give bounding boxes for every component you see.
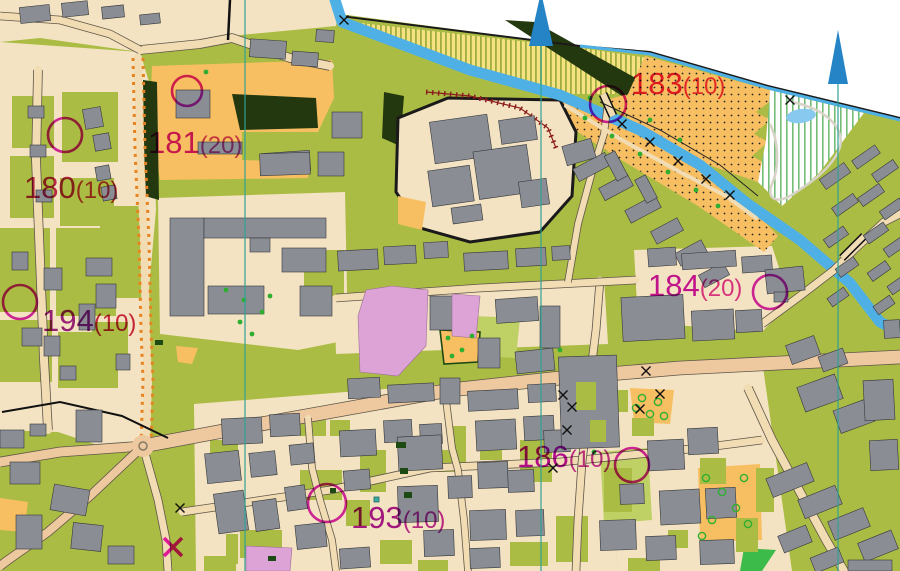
building [292,51,319,67]
building [82,107,103,130]
tree-dot [250,332,255,337]
building [339,429,376,457]
olive-pocket [226,534,238,564]
building [448,476,473,499]
hedge [330,488,336,493]
tree-dot [583,116,588,121]
building [470,547,501,568]
building [76,410,102,442]
building [884,320,900,339]
building [61,1,88,18]
building [735,309,762,332]
tree-dot [558,348,563,353]
tree-dot [648,118,653,123]
building [339,547,370,569]
building [848,560,892,571]
building [518,178,549,208]
building [28,106,44,118]
building [30,424,46,436]
tree-dot [610,134,615,139]
building [469,509,506,540]
building [284,485,307,512]
building [204,218,326,238]
building [71,523,104,552]
building [44,268,62,290]
building [208,286,264,314]
building [249,39,286,59]
building [647,247,676,267]
building [252,498,280,531]
tree-dot [678,138,683,143]
building [318,152,344,176]
sprint-map-canvas: 180(10)181(20)183(10)184(20)186(10)193(1… [0,0,900,571]
building [213,490,248,534]
building [863,379,895,421]
building [343,469,371,491]
hedge [155,340,163,345]
olive-courtyard [590,420,606,442]
tree-dot [446,336,451,341]
building [295,522,327,549]
control-score: (10) [683,73,726,100]
hedge [404,492,412,498]
control-score: (10) [569,446,612,473]
building [430,296,454,330]
tree-dot [450,354,455,359]
building [528,383,557,402]
building [108,546,134,564]
building [140,13,161,25]
building [765,266,805,294]
control-code: 180 [24,170,76,205]
hedge [400,468,408,474]
building [620,484,645,505]
pink-building [452,294,480,338]
olive-pocket [510,542,548,566]
olive-pocket [418,560,448,571]
building [269,413,300,437]
building [499,116,538,145]
building [22,328,42,346]
building [705,487,737,519]
building [428,165,475,206]
building [682,250,737,270]
building [19,4,51,23]
tree-dot [694,188,699,193]
olive-pocket [380,540,412,564]
building [260,152,311,176]
building [552,246,571,261]
building [10,462,40,484]
control-score: (10) [94,310,137,337]
tree-dot [470,334,475,339]
olive-pocket [736,518,758,552]
building [116,354,130,370]
tree-dot [224,288,229,293]
control-score: (20) [700,275,743,302]
building [464,251,509,271]
building [516,247,547,267]
building [0,430,24,448]
building [93,133,112,152]
building [347,377,380,399]
building [540,306,560,348]
building [12,252,28,270]
building [384,245,417,265]
building [338,249,379,271]
building [397,435,443,471]
building [16,515,42,549]
tree-dot [260,310,265,315]
control-code: 183 [631,66,683,101]
building [86,258,112,276]
building [515,348,555,374]
building [289,443,315,465]
building [478,338,500,368]
building [332,112,362,138]
building [495,297,539,324]
tree-dot [204,70,209,75]
building [700,539,735,564]
hedge [396,442,406,448]
tree-dot [238,320,243,325]
control-score: (20) [200,132,243,159]
control-code: 181 [148,125,200,160]
olive-courtyard [576,382,596,410]
building [316,29,335,42]
control-score: (10) [403,507,446,534]
building [96,284,116,308]
building [599,519,636,550]
building [646,535,677,560]
tree-dot [716,204,721,209]
building [687,427,718,455]
orienteering-map-screenshot: 180(10)181(20)183(10)184(20)186(10)193(1… [0,0,900,571]
building [516,510,545,537]
building [30,145,46,157]
control-code: 186 [517,439,569,474]
building [44,336,60,356]
olive-pocket [632,418,654,436]
olive-pocket [556,516,588,562]
tree-dot [666,170,671,175]
building [647,439,685,471]
building [478,461,509,488]
building [468,389,519,412]
building [249,451,277,478]
control-score: (10) [76,177,119,204]
tree-dot [268,294,273,299]
building [282,248,326,272]
control-code: 194 [42,303,94,338]
tree-dot [638,152,643,157]
building [869,439,899,470]
building [440,378,460,404]
building [300,286,332,316]
building [659,489,701,525]
region-fortress-orange [398,196,426,230]
building [388,383,435,403]
building [170,218,204,316]
building [60,366,76,380]
building [205,450,242,483]
building [691,309,735,341]
building [475,419,517,451]
tree-dot [460,348,465,353]
control-code: 184 [648,268,700,303]
roundabout [132,435,154,457]
building [250,238,270,252]
hedge [268,556,276,561]
control-code: 193 [351,500,403,535]
building [221,417,262,445]
building [424,241,449,258]
building [101,5,124,19]
